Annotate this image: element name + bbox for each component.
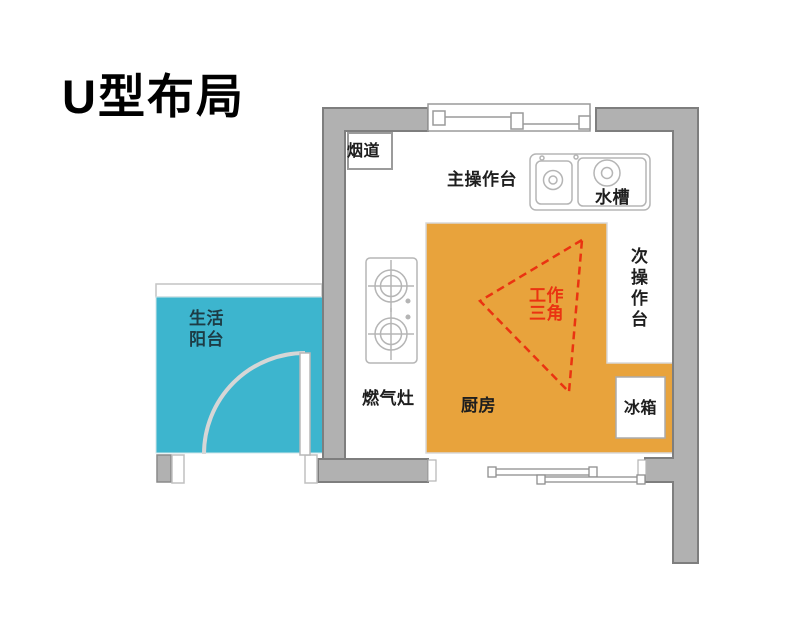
kitchen-label: 厨房: [461, 395, 496, 416]
window-sash-handle-left: [433, 111, 445, 125]
main-counter-label: 主操作台: [447, 169, 517, 190]
window-sash-handle-right: [579, 116, 590, 129]
work-triangle-label: 工作三角: [529, 287, 571, 323]
sink-faucet-hole-right: [574, 155, 578, 159]
gas-stove-unit: [366, 258, 417, 363]
kitchen-door-jamb-left: [428, 460, 436, 481]
stove-knob-bottom: [406, 315, 410, 319]
kitchen-window: [428, 104, 590, 131]
sliding-panel-1-end-right: [589, 467, 597, 477]
balcony-door-jamb-right: [305, 455, 317, 483]
sink-drain-left-inner: [549, 176, 557, 184]
fridge-label: 冰箱: [624, 398, 657, 419]
gas-stove-label: 燃气灶: [362, 388, 415, 409]
floor-plan-canvas: U型布局 烟道 主操作台 水槽 次操作台 燃气灶 厨房 冰箱 生活阳台 工作三角: [0, 0, 810, 618]
sink-unit: [530, 154, 650, 210]
window-sash-handle-center: [511, 113, 523, 129]
sink-drain-right-inner: [602, 168, 613, 179]
sliding-panel-1: [490, 469, 596, 475]
sliding-door: [488, 467, 645, 484]
balcony-door-jamb-left: [172, 455, 184, 483]
sliding-panel-2-end-left: [537, 475, 545, 484]
balcony-door-leaf: [300, 353, 310, 455]
sliding-panel-1-end-left: [488, 467, 496, 477]
wall-bottom-left: [318, 459, 428, 482]
wall-balcony-bottom: [157, 455, 171, 482]
sink-faucet-hole-left: [540, 156, 544, 160]
balcony-window: [156, 284, 322, 297]
page-title: U型布局: [62, 58, 245, 127]
sink-label: 水槽: [595, 187, 630, 208]
flue-label: 烟道: [347, 141, 380, 162]
secondary-counter-label: 次操作台: [631, 246, 651, 330]
stove-knob-top: [406, 299, 410, 303]
balcony-label: 生活阳台: [189, 308, 231, 350]
sliding-panel-2-end-right: [637, 475, 645, 484]
sliding-panel-2: [539, 477, 645, 482]
